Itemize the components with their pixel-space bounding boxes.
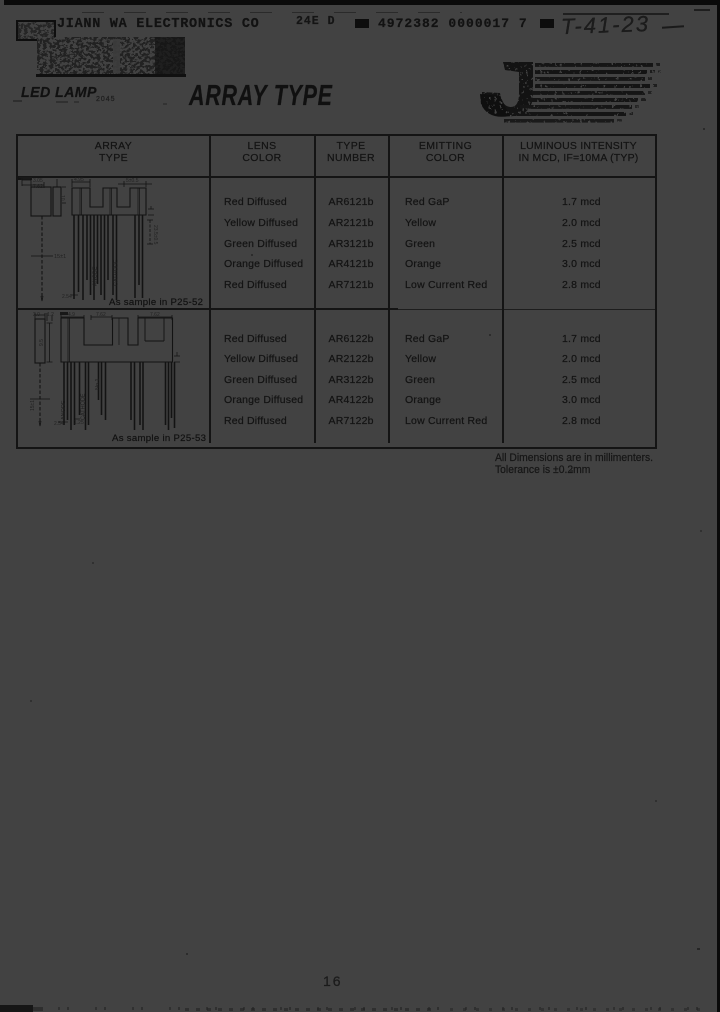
svg-text:4.9: 4.9	[68, 312, 75, 318]
svg-text:ANODE: ANODE	[61, 400, 67, 420]
svg-text:15±1: 15±1	[30, 400, 36, 411]
svg-text:CATHODE: CATHODE	[114, 259, 120, 286]
svg-text:7.62: 7.62	[150, 312, 160, 318]
svg-text:5±0.5: 5±0.5	[126, 178, 139, 184]
svg-text:23.5±0.5: 23.5±0.5	[152, 225, 158, 245]
svg-text:2.0: 2.0	[33, 312, 40, 318]
svg-text:7.62: 7.62	[96, 312, 106, 318]
svg-text:No.1: No.1	[95, 378, 101, 390]
svg-text:CATHODE: CATHODE	[81, 393, 87, 420]
svg-text:2.54: 2.54	[54, 421, 64, 427]
svg-text:10: 10	[59, 195, 65, 201]
svg-text:ANODE: ANODE	[93, 266, 99, 286]
svg-text:15±1: 15±1	[54, 254, 66, 260]
svg-text:1.2: 1.2	[47, 312, 54, 318]
svg-text:2.54: 2.54	[62, 294, 72, 300]
svg-text:9.5: 9.5	[39, 339, 45, 346]
svg-text:4.95: 4.95	[74, 177, 84, 183]
